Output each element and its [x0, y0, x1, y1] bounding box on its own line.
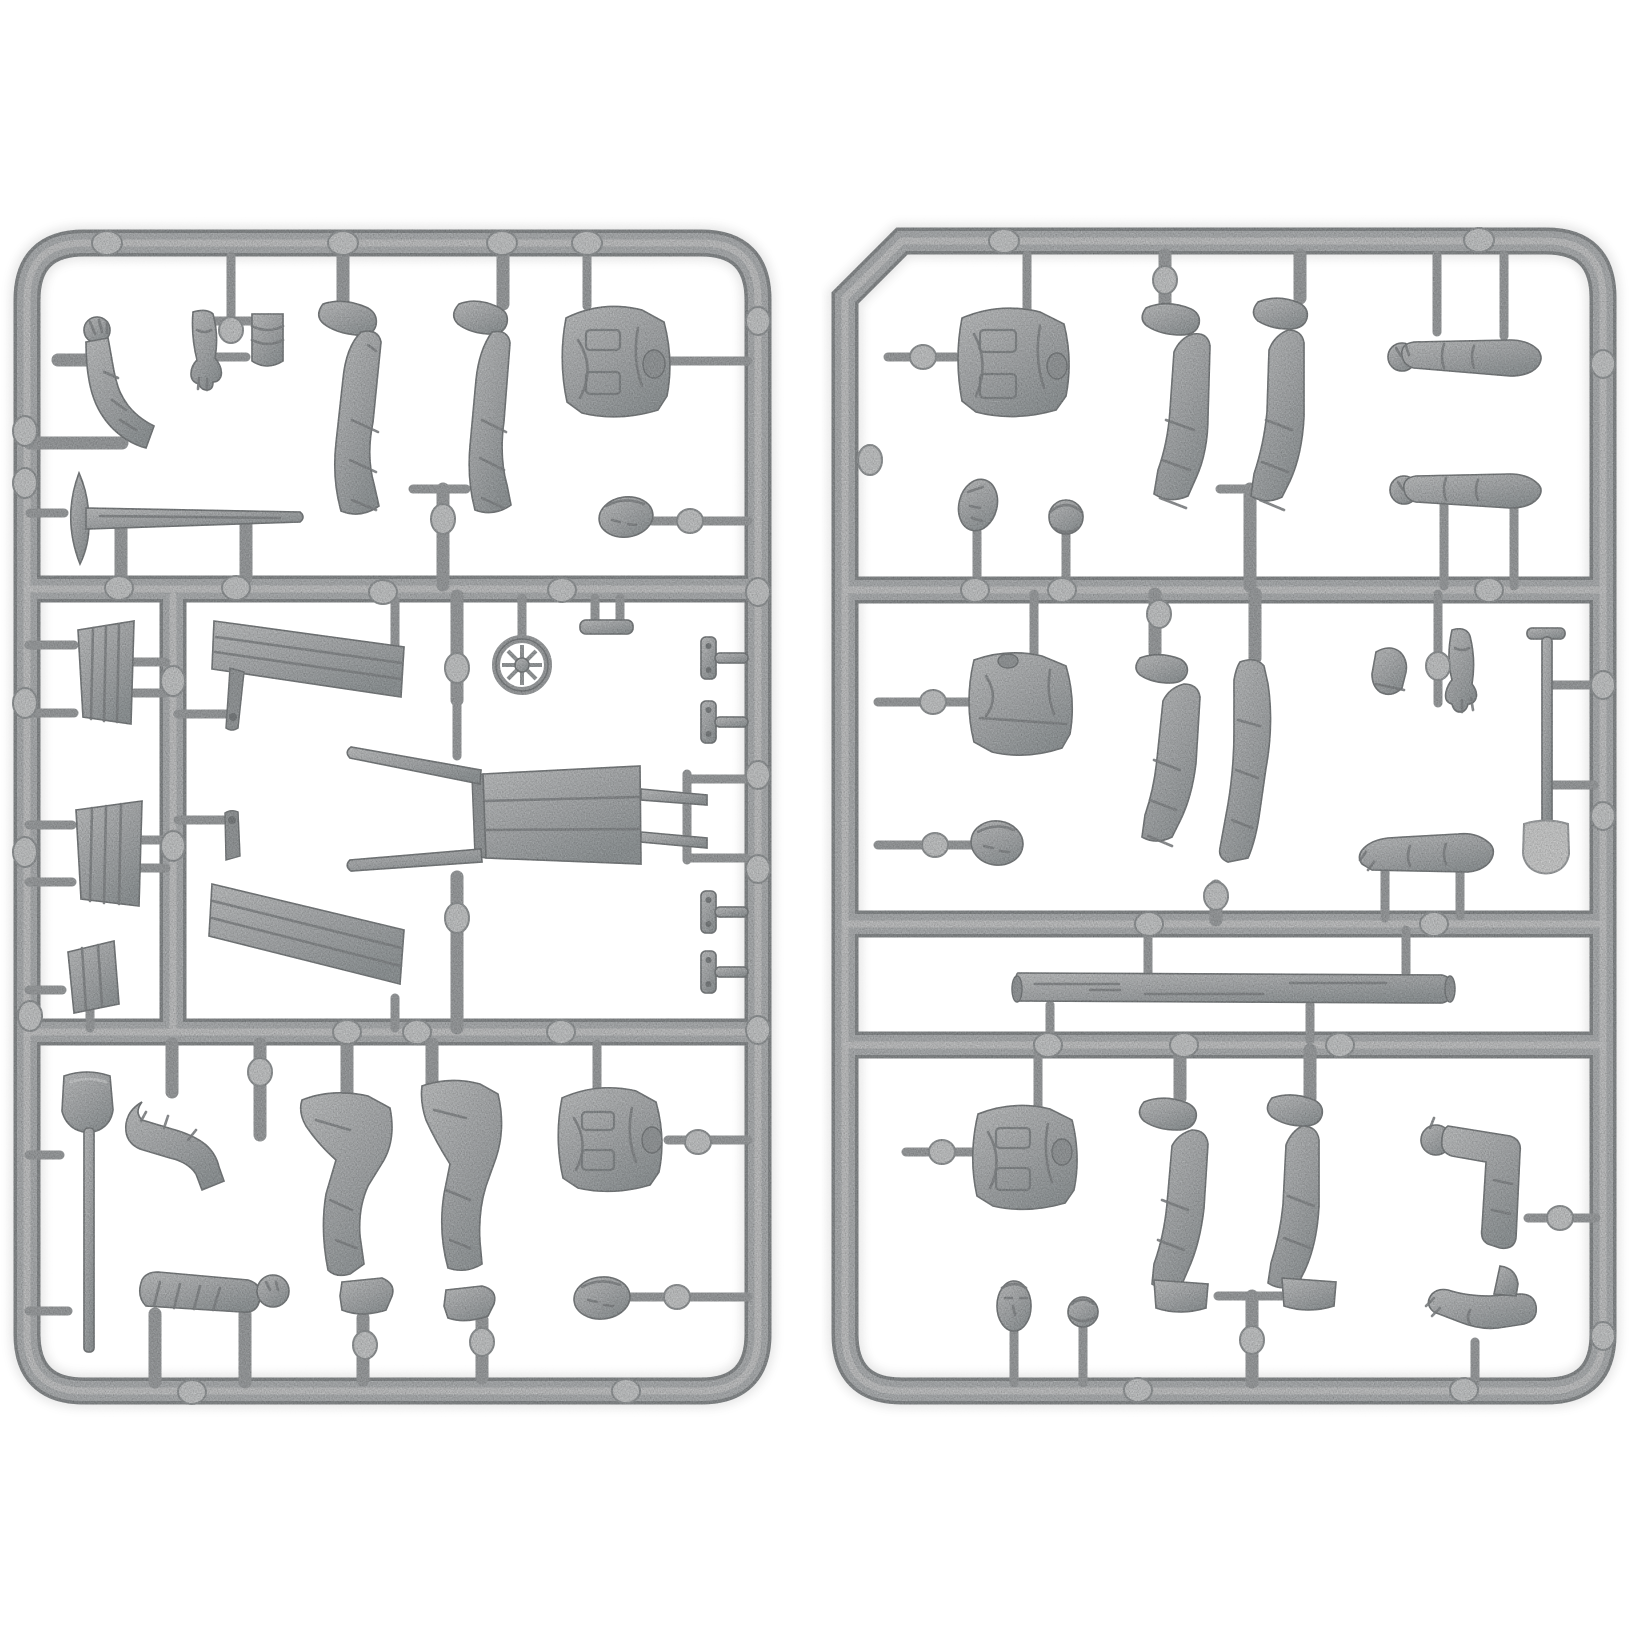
- part-right-boot-part: [1372, 648, 1406, 694]
- part-left-rolled-cuff: [252, 314, 283, 366]
- part-left-bench-plank-1: [212, 621, 404, 730]
- sprue-left: [13, 231, 770, 1404]
- part-left-bent-arm-elbow: [126, 1102, 224, 1190]
- part-right-jacket-torso-4: [973, 1105, 1077, 1209]
- part-left-leg-straight-2: [454, 301, 511, 512]
- part-left-head-2: [572, 1274, 632, 1322]
- part-left-leg-straight-1: [319, 301, 381, 514]
- part-left-jacket-torso-1: [562, 306, 670, 416]
- part-right-leg-straight-6: [1220, 660, 1271, 862]
- part-right-arm-straight-1: [1388, 340, 1541, 376]
- part-right-trench-shovel: [1523, 628, 1569, 874]
- part-right-leg-straight-3: [1142, 304, 1210, 508]
- part-left-t-bracket-1: [701, 637, 748, 679]
- part-right-jacket-torso-3: [958, 308, 1069, 416]
- part-right-cap-head-1: [1049, 500, 1083, 534]
- part-left-t-bracket-3: [701, 891, 748, 933]
- part-left-wood-panel-1: [78, 621, 134, 724]
- part-left-leg-bent-1: [301, 1093, 393, 1314]
- part-left-leg-bent-2: [422, 1080, 502, 1320]
- part-right-leg-straight-4: [1251, 298, 1307, 510]
- part-left-spoked-wheel: [496, 639, 548, 691]
- part-right-log: [1012, 973, 1455, 1003]
- part-left-axle-bar: [580, 620, 633, 634]
- part-right-head-5: [997, 1281, 1031, 1331]
- part-right-folded-arm: [1426, 1266, 1536, 1328]
- part-left-pickaxe: [71, 473, 303, 564]
- part-left-wheelbarrow-body: [347, 747, 707, 871]
- part-left-small-board: [68, 941, 119, 1013]
- part-right-arm-straight-2: [1390, 474, 1541, 508]
- part-right-bent-arm-rest: [1359, 834, 1493, 872]
- part-right-leg-straight-8: [1268, 1095, 1337, 1310]
- part-right-head-3: [953, 475, 1002, 535]
- part-left-bent-arm-raised: [84, 317, 154, 448]
- part-left-wood-panel-2: [76, 801, 142, 906]
- part-left-head-1: [596, 493, 655, 540]
- part-right-tunic-torso: [969, 653, 1072, 755]
- part-right-thumbs-up-arm: [1421, 1118, 1520, 1248]
- part-right-leg-straight-7: [1140, 1098, 1209, 1312]
- product-photo-canvas: Two light-gray plastic model kit sprues …: [0, 0, 1632, 1632]
- part-right-cap-head-2: [1068, 1297, 1098, 1327]
- part-left-t-bracket-4: [701, 951, 748, 993]
- part-right-head-4: [968, 818, 1026, 869]
- sprue-photo: [0, 0, 1632, 1632]
- part-left-rolled-sleeve-arm: [140, 1272, 289, 1312]
- part-left-jacket-torso-2: [558, 1088, 662, 1192]
- part-left-bench-plank-2: [209, 811, 404, 984]
- sprue-right: [845, 228, 1615, 1402]
- part-right-leg-straight-5: [1136, 655, 1200, 846]
- part-left-t-bracket-2: [701, 701, 748, 743]
